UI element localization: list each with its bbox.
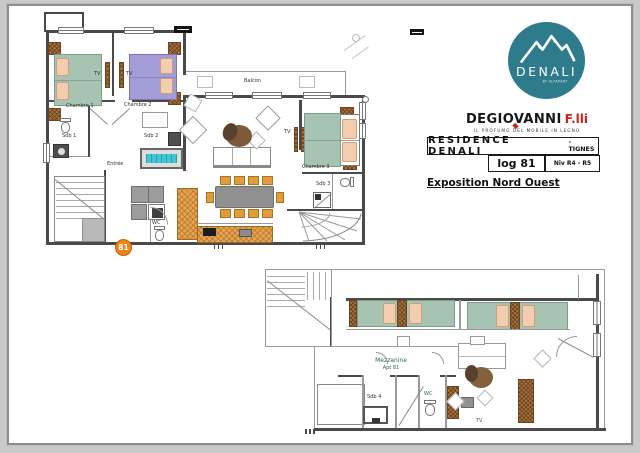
section-marker xyxy=(174,26,192,33)
neighbor-circle xyxy=(352,34,360,42)
cooktop xyxy=(203,228,216,236)
wall xyxy=(332,174,333,210)
stair-tread xyxy=(56,206,105,207)
label-sdb2: Sdb 2 xyxy=(144,134,158,139)
wall xyxy=(315,346,332,347)
bed-divider xyxy=(397,300,407,327)
pillow xyxy=(342,142,357,162)
residence-location: - TIGNES xyxy=(568,139,598,153)
pillow xyxy=(383,303,396,324)
window xyxy=(43,143,50,163)
counter-edge xyxy=(197,223,273,224)
washbasin xyxy=(53,144,69,158)
toilet xyxy=(425,404,435,416)
stair-tread xyxy=(267,288,305,289)
label-tv-chambre1: TV xyxy=(94,72,100,77)
pillow xyxy=(409,303,422,324)
balcony-furniture xyxy=(299,76,315,88)
chair xyxy=(234,176,245,185)
basin-bowl xyxy=(58,148,65,155)
chair xyxy=(220,209,231,218)
bath-bench xyxy=(142,112,168,128)
label-tv-chambre2: TV xyxy=(126,72,132,77)
label-sdb1: Sdb 1 xyxy=(62,134,76,139)
stair-tread xyxy=(267,282,305,283)
side-table xyxy=(397,336,410,347)
dining-table xyxy=(215,186,274,208)
shower xyxy=(363,406,388,424)
window xyxy=(124,27,154,34)
bed-divider xyxy=(510,302,520,330)
bathtub-water xyxy=(146,154,177,163)
desk-chair xyxy=(470,336,485,345)
chair xyxy=(262,209,273,218)
bed-divider xyxy=(55,80,101,81)
pillow xyxy=(160,78,173,94)
drawing-sheet-page: Balcon Chambre 1 Chambre 2 TV TV Sdb 1 S… xyxy=(0,0,640,453)
chair xyxy=(248,209,259,218)
bean-bag xyxy=(465,365,478,382)
pillow xyxy=(56,58,69,76)
kitchen-tall-units xyxy=(177,188,198,240)
hatch-tick xyxy=(316,245,317,249)
sofa xyxy=(213,147,271,168)
wall xyxy=(44,12,84,14)
wall xyxy=(302,172,364,174)
brand-suffix: F.lli xyxy=(565,112,588,126)
brand-degiovanni: DEGIOVANNIF.lli IL PROFUMO DEL MOBILE IN… xyxy=(452,112,602,134)
tv-cabinet xyxy=(105,62,110,88)
washbasin xyxy=(168,132,181,146)
label-chambre3: Chambre 3 xyxy=(302,165,330,170)
balcony-rail xyxy=(186,71,346,72)
wall xyxy=(395,375,397,428)
chair xyxy=(220,176,231,185)
wall xyxy=(604,269,605,431)
brand-name-row: DEGIOVANNIF.lli xyxy=(452,112,602,126)
pillow xyxy=(160,58,173,74)
label-tv-living: TV xyxy=(284,130,290,135)
unit-number: log 81 xyxy=(497,157,535,170)
window xyxy=(593,333,601,357)
logo-subtext: BY ALPAPART xyxy=(532,80,567,84)
stair-tread xyxy=(307,272,308,300)
window xyxy=(303,92,331,99)
kitchen-cabinet xyxy=(131,204,147,220)
wall xyxy=(183,30,186,75)
hatch-tick xyxy=(313,429,315,434)
wall xyxy=(314,428,606,431)
wall xyxy=(46,30,49,244)
shower xyxy=(313,192,331,208)
label-apt: Apt 81 xyxy=(364,366,418,371)
staircase xyxy=(54,176,105,242)
wall xyxy=(330,297,332,347)
window xyxy=(252,92,282,99)
balcony-furniture xyxy=(197,76,213,88)
column-symbol xyxy=(362,96,369,103)
chair xyxy=(276,192,284,203)
toilet xyxy=(340,178,350,187)
staircase xyxy=(265,269,332,347)
pillow xyxy=(496,305,509,327)
toilet xyxy=(155,230,164,241)
exposition-label: Exposition Nord Ouest xyxy=(427,177,560,189)
label-chambre2: Chambre 2 xyxy=(124,103,152,108)
stair-tread xyxy=(56,182,105,183)
label-mezzanine: Mezzanine xyxy=(364,358,418,364)
chair xyxy=(234,209,245,218)
label-wc-mezzanine: WC xyxy=(424,392,432,397)
hatch-tick xyxy=(214,245,215,249)
label-balcon: Balcon xyxy=(244,79,261,84)
hatch-tick xyxy=(324,245,325,249)
kitchen-cabinet xyxy=(131,186,164,203)
hatch-tick xyxy=(218,245,219,249)
bed-chambre3 xyxy=(305,114,360,166)
window xyxy=(593,301,601,325)
bathtub xyxy=(140,148,183,169)
balcony-rail xyxy=(345,71,346,95)
wall xyxy=(314,347,315,428)
stair-tread xyxy=(56,188,105,189)
marker-dash xyxy=(177,29,189,30)
stair-tread xyxy=(56,194,105,195)
wall xyxy=(459,300,461,330)
cabinet-divider xyxy=(148,187,149,202)
skylight-window xyxy=(317,384,365,425)
tv-cabinet xyxy=(518,379,534,423)
brand-tagline: IL PROFUMO DEL MOBILE IN LEGNO xyxy=(452,129,602,134)
stair-tread xyxy=(267,276,305,277)
tv-cabinet xyxy=(294,127,298,152)
hatch-tick xyxy=(320,245,321,249)
stair-tread xyxy=(267,300,305,301)
kitchen-sink xyxy=(239,229,252,237)
tv-cabinet xyxy=(119,62,124,88)
bed-divider xyxy=(306,140,359,141)
stair-tread xyxy=(313,272,314,300)
railing xyxy=(346,329,570,330)
residence-title-box: RESIDENCE DENALI - TIGNES xyxy=(427,137,599,155)
unit-badge: 81 xyxy=(115,239,132,256)
chair xyxy=(206,192,214,203)
wall xyxy=(418,375,420,428)
desk-line xyxy=(459,356,505,357)
chair xyxy=(248,176,259,185)
window xyxy=(359,102,366,120)
bed-divider xyxy=(349,300,357,327)
label-sdb4: Sdb 4 xyxy=(367,395,381,400)
unit-box: log 81 xyxy=(488,155,545,172)
unit-badge-number: 81 xyxy=(118,243,128,252)
hatch-tick xyxy=(309,429,311,434)
wall xyxy=(578,275,579,299)
chair xyxy=(262,176,273,185)
logo-wordmark: DENALI xyxy=(508,64,585,79)
desk xyxy=(458,343,506,369)
toilet xyxy=(61,122,70,133)
wall xyxy=(112,32,114,96)
level-box: Niv R4 - R5 xyxy=(545,155,600,172)
window xyxy=(58,27,84,34)
label-sdb3: Sdb 3 xyxy=(316,182,330,187)
marker-dash xyxy=(412,32,422,33)
stair-tread xyxy=(325,272,326,300)
window xyxy=(359,123,366,139)
mountain-icon xyxy=(517,30,577,64)
window xyxy=(205,92,233,99)
wall xyxy=(440,375,456,377)
pillow xyxy=(56,82,69,100)
shower-drain xyxy=(372,418,380,423)
hatch-tick xyxy=(222,245,223,249)
wall xyxy=(338,375,364,377)
pillow xyxy=(342,119,357,139)
wall xyxy=(44,12,46,32)
label-tv-mezzanine: TV xyxy=(476,419,482,424)
denali-logo: DENALI BY ALPAPART xyxy=(508,22,585,99)
level-label: Niv R4 - R5 xyxy=(554,160,591,167)
spiral-staircase xyxy=(297,211,363,242)
hatch-tick xyxy=(305,429,307,434)
stair-tread xyxy=(319,272,320,300)
section-marker xyxy=(410,29,424,35)
label-entree: Entrée xyxy=(107,162,123,167)
floor-edge xyxy=(332,346,460,347)
shower-head xyxy=(315,194,321,200)
stair-landing xyxy=(82,218,105,242)
pillow xyxy=(522,305,535,327)
toilet-tank xyxy=(350,177,354,187)
